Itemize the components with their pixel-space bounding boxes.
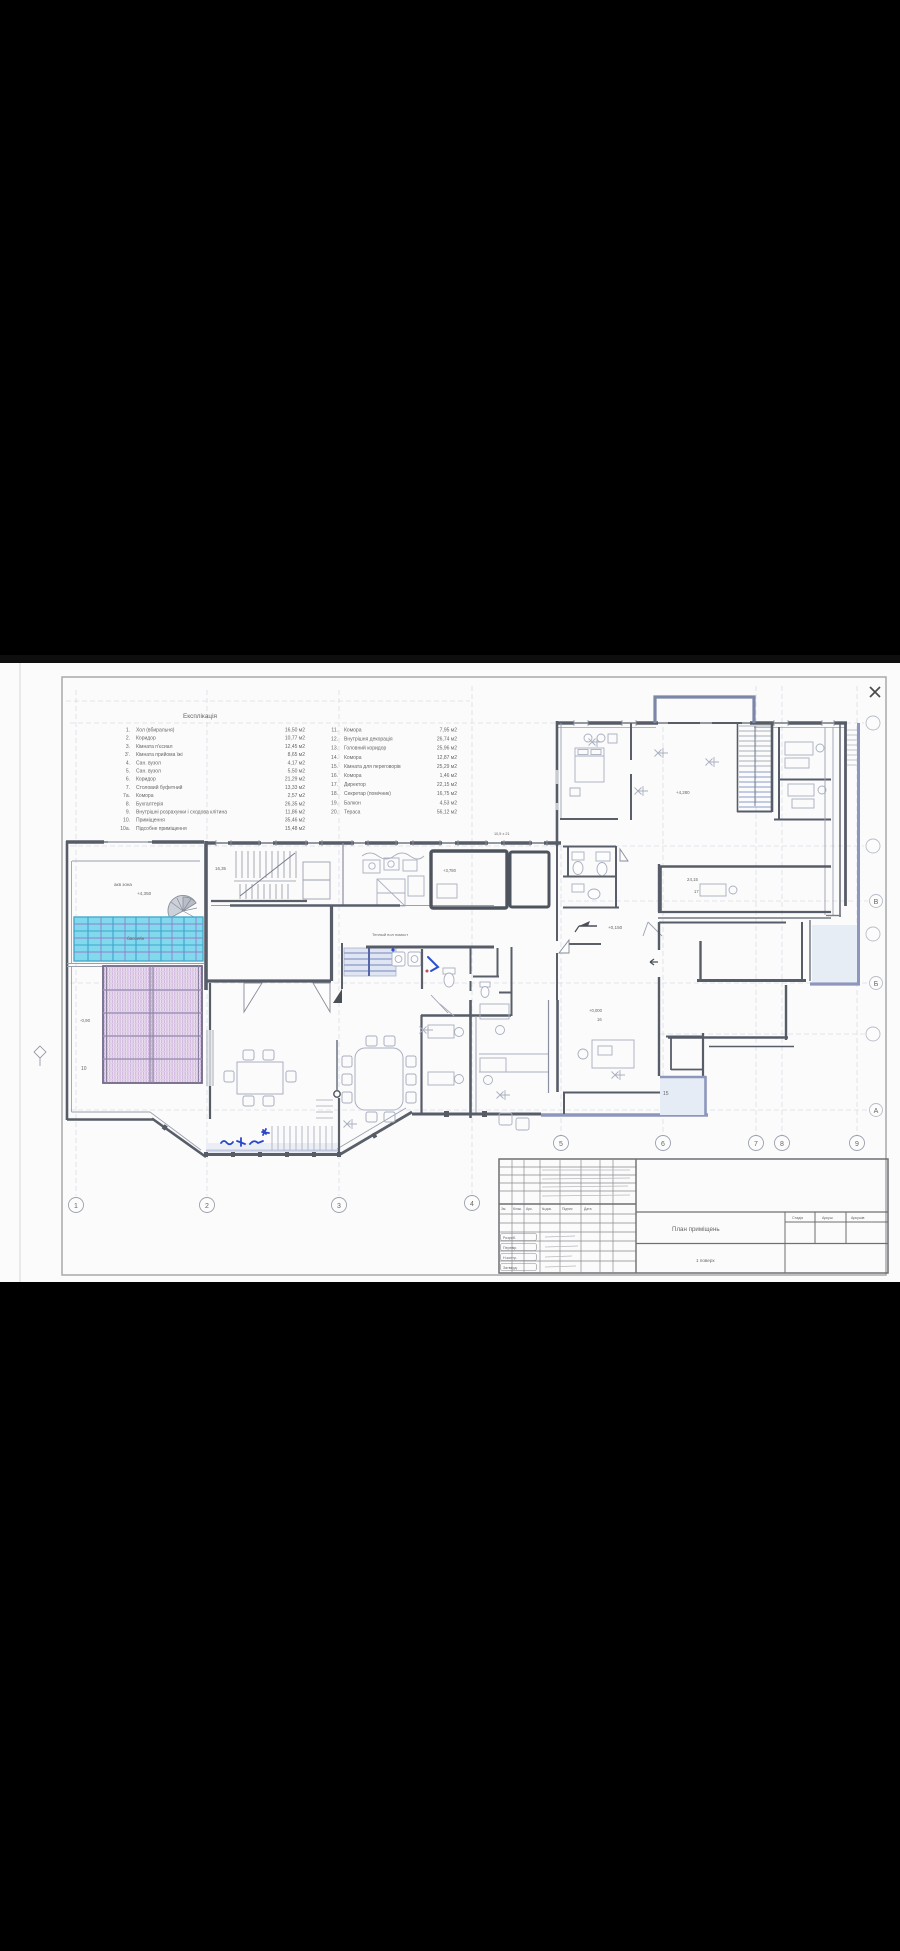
svg-text:16,75 м2: 16,75 м2 <box>437 791 457 797</box>
svg-text:9: 9 <box>855 1141 859 1148</box>
svg-text:Бухгалтерія: Бухгалтерія <box>136 801 163 807</box>
svg-text:17.: 17. <box>331 782 338 788</box>
svg-text:Комора: Комора <box>344 755 362 761</box>
svg-text:24,15: 24,15 <box>687 877 699 882</box>
svg-text:Аркушів: Аркушів <box>851 1216 864 1220</box>
svg-text:8,65 м2: 8,65 м2 <box>288 752 306 758</box>
svg-text:10,77 м2: 10,77 м2 <box>285 736 305 742</box>
svg-text:2: 2 <box>205 1203 209 1210</box>
svg-text:Хол (вбиральня): Хол (вбиральня) <box>136 728 175 734</box>
svg-text:12,45 м2: 12,45 м2 <box>285 744 305 750</box>
svg-text:1.: 1. <box>126 728 130 734</box>
svg-text:3: 3 <box>337 1203 341 1210</box>
svg-text:26,74 м2: 26,74 м2 <box>437 737 457 743</box>
svg-text:13,33 м2: 13,33 м2 <box>285 785 305 791</box>
svg-text:14.: 14. <box>331 755 338 761</box>
svg-text:Підпис: Підпис <box>562 1207 573 1211</box>
svg-text:План приміщень: План приміщень <box>672 1226 720 1233</box>
svg-text:+3,780: +3,780 <box>443 868 457 873</box>
svg-text:Кімната прийома їжі: Кімната прийома їжі <box>136 751 183 758</box>
svg-text:4,53 м2: 4,53 м2 <box>440 800 458 806</box>
svg-text:7.: 7. <box>126 785 130 791</box>
svg-text:акв зона: акв зона <box>114 882 132 887</box>
svg-text:Зм.: Зм. <box>501 1207 506 1211</box>
svg-text:Кімната для переговорів: Кімната для переговорів <box>344 764 401 770</box>
svg-text:15: 15 <box>663 1091 669 1097</box>
svg-text:Теплый пол помост: Теплый пол помост <box>372 932 408 937</box>
svg-text:4.: 4. <box>126 760 130 766</box>
svg-text:7а.: 7а. <box>123 793 130 799</box>
svg-text:35,46 м2: 35,46 м2 <box>285 818 305 824</box>
svg-text:6: 6 <box>661 1141 665 1148</box>
svg-text:+4,350: +4,350 <box>137 891 152 896</box>
svg-text:10: 10 <box>81 1066 87 1072</box>
svg-text:Комора: Комора <box>344 728 362 734</box>
svg-text:Внутрішні розрахунки і сходова: Внутрішні розрахунки і сходова клітина <box>136 810 227 816</box>
svg-text:2,57 м2: 2,57 м2 <box>288 793 306 799</box>
svg-text:16.: 16. <box>331 773 338 779</box>
svg-text:16,35: 16,35 <box>215 866 227 871</box>
svg-text:Підсобне приміщення: Підсобне приміщення <box>136 826 187 832</box>
svg-text:2.: 2. <box>126 736 130 742</box>
svg-text:20.: 20. <box>331 809 338 815</box>
svg-text:Столовий буфетний: Столовий буфетний <box>136 784 183 791</box>
svg-text:Розроб.: Розроб. <box>503 1236 516 1240</box>
svg-text:8: 8 <box>780 1141 784 1148</box>
svg-text:А: А <box>874 1108 879 1115</box>
svg-text:11.: 11. <box>331 728 338 734</box>
svg-text:17: 17 <box>694 889 699 894</box>
svg-text:25,96 м2: 25,96 м2 <box>437 746 457 752</box>
svg-text:1 поверх: 1 поверх <box>696 1258 715 1263</box>
svg-text:18.: 18. <box>331 791 338 797</box>
svg-text:12.: 12. <box>331 737 338 743</box>
svg-text:Дата: Дата <box>584 1207 592 1211</box>
svg-text:Н.контр.: Н.контр. <box>503 1256 517 1260</box>
svg-text:Секретар (помічник): Секретар (помічник) <box>344 791 391 797</box>
svg-text:+4,280: +4,280 <box>676 790 690 795</box>
svg-text:Комора: Комора <box>136 793 154 799</box>
svg-text:Комора: Комора <box>344 773 362 779</box>
svg-text:10,5 х 21: 10,5 х 21 <box>494 832 510 836</box>
svg-text:Кімната п'єсиал: Кімната п'єсиал <box>136 744 173 750</box>
svg-text:Сан. вузол: Сан. вузол <box>136 769 161 775</box>
svg-text:Перевір.: Перевір. <box>503 1246 517 1250</box>
svg-text:1,46 м2: 1,46 м2 <box>440 773 458 779</box>
svg-text:5,50 м2: 5,50 м2 <box>288 769 306 775</box>
svg-text:Аркуш: Аркуш <box>822 1216 833 1220</box>
svg-text:16: 16 <box>597 1017 602 1022</box>
svg-text:9.: 9. <box>126 810 130 816</box>
svg-text:Сан. вузол: Сан. вузол <box>136 760 161 766</box>
svg-text:6.: 6. <box>126 777 130 783</box>
svg-text:22,15 м2: 22,15 м2 <box>437 782 457 788</box>
svg-text:5.: 5. <box>126 769 130 775</box>
svg-text:Арк.: Арк. <box>526 1207 533 1211</box>
svg-text:Затверд.: Затверд. <box>503 1266 518 1270</box>
svg-text:10а.: 10а. <box>120 826 130 832</box>
svg-text:11,86 м2: 11,86 м2 <box>285 810 305 816</box>
svg-text:Б: Б <box>874 981 879 988</box>
svg-text:5: 5 <box>559 1141 563 1148</box>
svg-text:В: В <box>874 899 879 906</box>
svg-text:16,50 м2: 16,50 м2 <box>285 728 305 734</box>
svg-text:7: 7 <box>754 1141 758 1148</box>
svg-text:15.: 15. <box>331 764 338 770</box>
svg-text:3'.: 3'. <box>125 752 130 758</box>
svg-text:Приміщення: Приміщення <box>136 818 165 824</box>
svg-text:25,29 м2: 25,29 м2 <box>437 764 457 770</box>
svg-text:8.: 8. <box>126 801 130 807</box>
svg-text:+0,000: +0,000 <box>589 1008 603 1013</box>
svg-text:4,17 м2: 4,17 м2 <box>288 760 306 766</box>
svg-text:1: 1 <box>74 1203 78 1210</box>
svg-text:-0,90: -0,90 <box>80 1018 91 1023</box>
svg-text:56,12 м2: 56,12 м2 <box>437 809 457 815</box>
svg-text:4: 4 <box>470 1201 474 1208</box>
svg-text:Коридор: Коридор <box>136 736 156 742</box>
svg-text:бассейн: бассейн <box>127 935 145 941</box>
svg-text:26,35 м2: 26,35 м2 <box>285 801 305 807</box>
svg-text:19.: 19. <box>331 800 338 806</box>
svg-text:Балкон: Балкон <box>344 800 361 806</box>
svg-text:№док.: №док. <box>542 1207 552 1211</box>
svg-text:Головний коридор: Головний коридор <box>344 745 386 752</box>
svg-text:13.: 13. <box>331 746 338 752</box>
svg-text:Кільк.: Кільк. <box>513 1207 522 1211</box>
svg-text:Експлікація: Експлікація <box>183 712 218 720</box>
svg-text:+0,150: +0,150 <box>608 925 623 930</box>
svg-text:Стадія: Стадія <box>792 1216 803 1220</box>
svg-text:3.: 3. <box>126 744 130 750</box>
svg-text:Тераса: Тераса <box>344 809 361 815</box>
svg-text:7,95 м2: 7,95 м2 <box>440 728 458 734</box>
svg-text:15,48 м2: 15,48 м2 <box>285 826 305 832</box>
svg-text:21,29 м2: 21,29 м2 <box>285 777 305 783</box>
svg-text:Внутрішня декорація: Внутрішня декорація <box>344 737 393 743</box>
svg-text:12,87 м2: 12,87 м2 <box>437 755 457 761</box>
svg-text:Коридор: Коридор <box>136 777 156 783</box>
svg-text:10.: 10. <box>123 818 130 824</box>
svg-text:Директор: Директор <box>344 782 366 788</box>
